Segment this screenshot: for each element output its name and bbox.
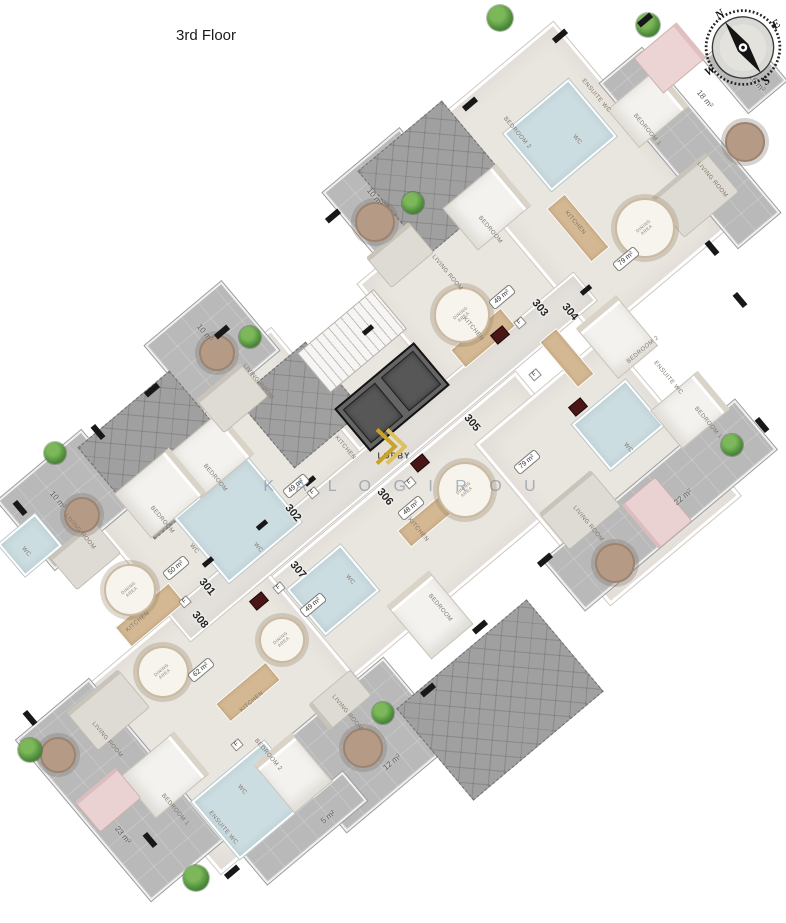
- compass-n: N: [712, 6, 728, 22]
- outdoor-table: [725, 122, 765, 162]
- room-label: ENSUITE WC: [652, 360, 683, 396]
- kalogirou-logo-icon: [373, 428, 407, 471]
- compass-e: E: [768, 17, 783, 33]
- outdoor-table: [343, 728, 383, 768]
- tree: [18, 738, 42, 762]
- column: [325, 209, 341, 224]
- tree: [721, 434, 743, 456]
- compass-rose: N E S W: [698, 0, 786, 95]
- column: [23, 710, 38, 726]
- page-title: 3rd Floor: [176, 27, 236, 44]
- tree: [402, 192, 424, 214]
- tree: [183, 865, 209, 891]
- tree: [44, 442, 66, 464]
- kalogirou-watermark: K A L O G I R O U: [263, 478, 544, 496]
- tree: [487, 5, 513, 31]
- tree: [239, 326, 261, 348]
- door-label: F: [528, 368, 541, 381]
- outdoor-table: [40, 737, 76, 773]
- column: [705, 240, 720, 256]
- tree: [372, 702, 394, 724]
- column: [733, 292, 748, 308]
- outdoor-table: [355, 202, 395, 242]
- outdoor-table: [595, 543, 635, 583]
- compass-s: S: [760, 73, 773, 88]
